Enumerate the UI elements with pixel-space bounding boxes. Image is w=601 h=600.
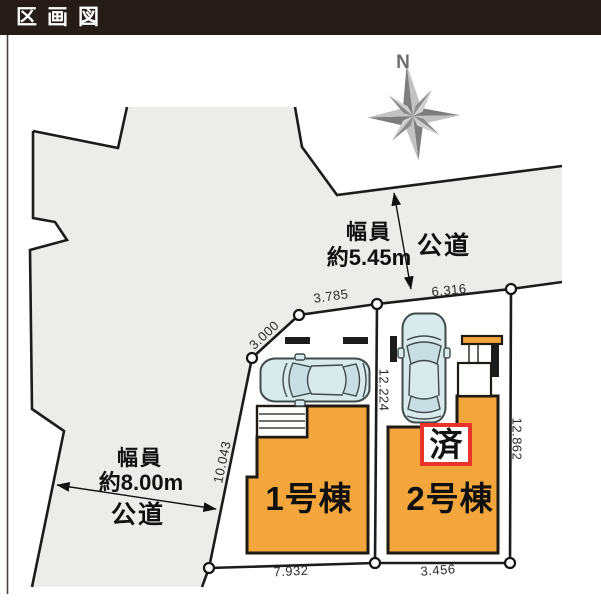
parking-dash: [285, 337, 310, 344]
dimension-label-lot2-bottom: 3.456: [420, 561, 456, 578]
parking-dash: [390, 336, 397, 362]
north-road-type-label: 公道: [417, 226, 471, 262]
plot-plan-image: 区画図: [0, 0, 601, 600]
west-road-type-label: 公道: [111, 495, 165, 531]
compass-rose-icon: [362, 59, 465, 166]
lot-boundary-bottom: [209, 563, 510, 568]
dimension-label-divider: 12.224: [377, 369, 392, 412]
car-lot1: [261, 354, 370, 406]
building-1-label: 1号棟: [265, 472, 352, 520]
building-2-porch: [458, 363, 491, 396]
dimension-label-lot2-right: 12.862: [510, 418, 525, 461]
building-2-canopy: [462, 336, 502, 344]
north-road-width-label-2: 約5.45m: [327, 240, 411, 272]
west-road-width-label-2: 約8.00m: [99, 465, 183, 497]
north-label: N: [396, 52, 410, 74]
car-lot2: [398, 314, 450, 423]
building-2-label: 2号棟: [406, 472, 493, 520]
sold-badge-text: 済: [430, 428, 463, 461]
lot-divider-line: [375, 304, 377, 563]
dimension-label-lot1-bottom: 7.932: [273, 563, 309, 580]
parking-dash: [343, 337, 368, 344]
building-2-entrance-wall: [491, 344, 499, 377]
sold-badge: 済: [420, 423, 472, 466]
